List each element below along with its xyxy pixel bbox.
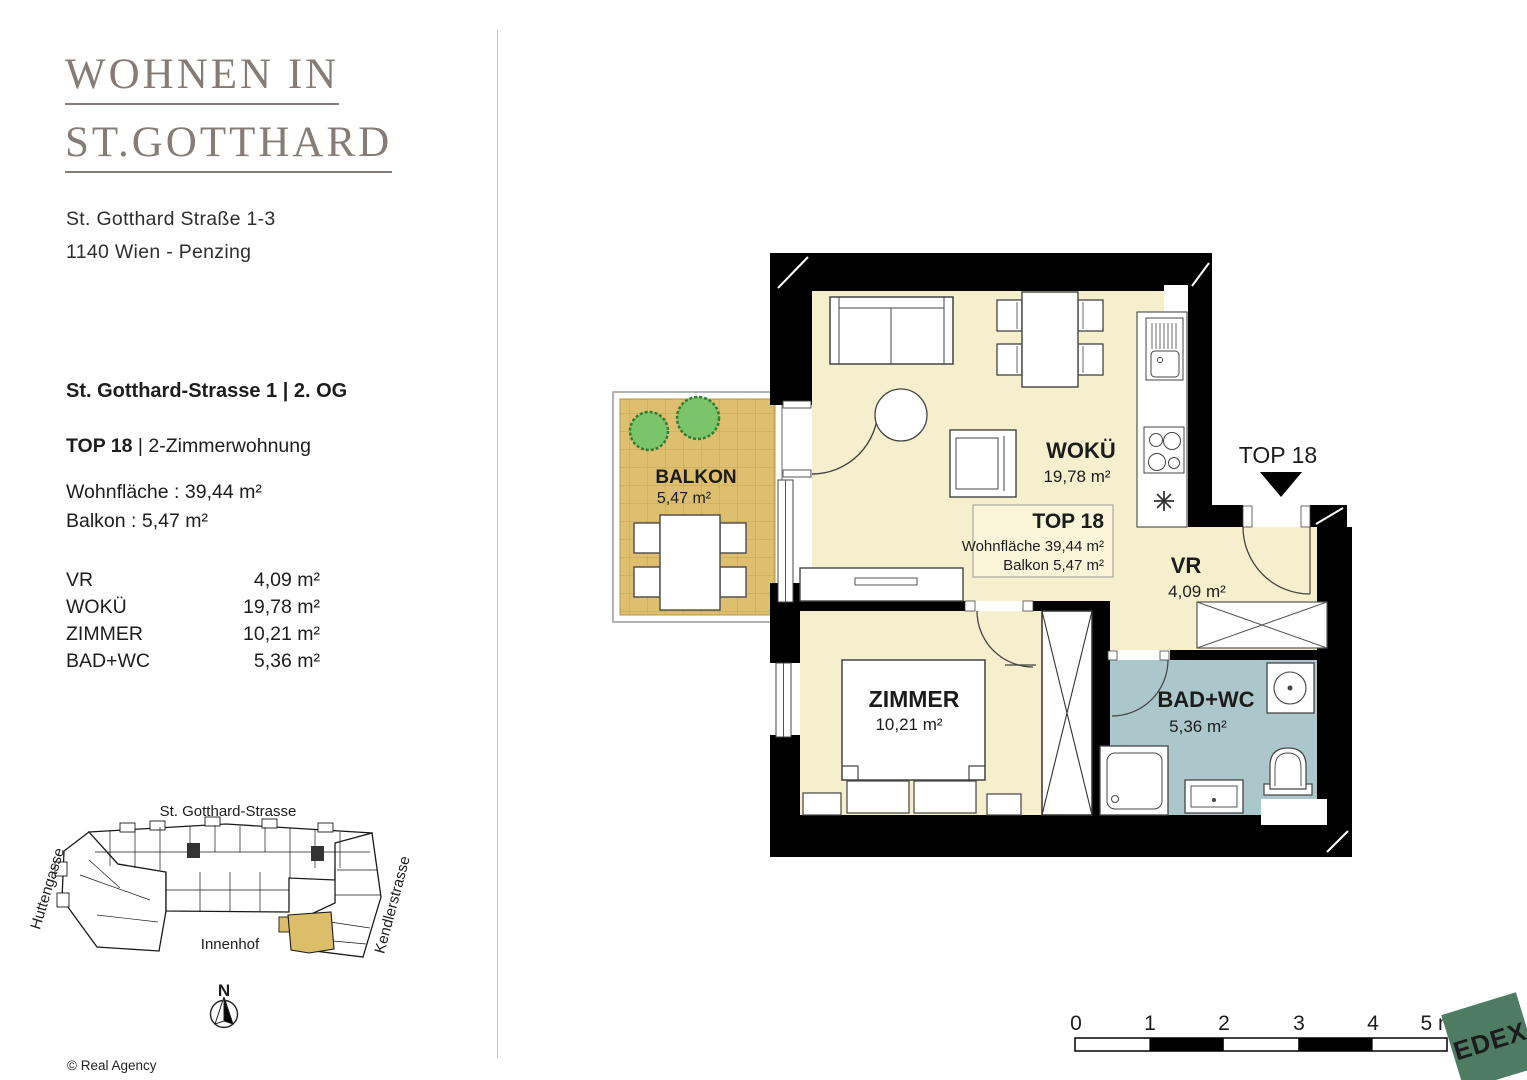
plan-graphics: BALKON 5,47 m² <box>0 0 1527 1080</box>
stove-icon <box>1144 427 1184 473</box>
kitchen-counter <box>1137 312 1187 527</box>
unit-info-box: TOP 18 Wohnfläche 39,44 m² Balkon 5,47 m… <box>962 505 1113 577</box>
balcony-label: BALKON <box>655 467 736 488</box>
woku-area-label: 19,78 m² <box>1043 467 1110 486</box>
wardrobe <box>1197 602 1327 648</box>
shower-icon <box>1100 746 1168 815</box>
site-plan: St. Gotthard-Strasse Huttengasse Kendler… <box>27 803 414 957</box>
bad-area-label: 5,36 m² <box>1169 717 1227 736</box>
nightstand <box>803 793 841 815</box>
balcony: BALKON 5,47 m² <box>613 392 782 622</box>
scale-bar: 0 1 2 3 4 5 m <box>1070 1012 1455 1051</box>
site-stairwell <box>311 846 324 861</box>
scale-tick-label: 2 <box>1218 1012 1230 1035</box>
site-highlighted-unit <box>279 912 334 953</box>
bad-label: BAD+WC <box>1157 687 1254 712</box>
armchair <box>950 430 1016 497</box>
zimmer-area-label: 10,21 m² <box>875 715 942 734</box>
scale-tick-label: 0 <box>1070 1012 1082 1035</box>
scale-tick-label: 4 <box>1367 1012 1379 1035</box>
zimmer-window <box>776 663 791 737</box>
washing-machine-icon <box>1267 663 1314 713</box>
balcony-area-label: 5,47 m² <box>657 490 712 507</box>
info-box-line1: Wohnfläche 39,44 m² <box>962 538 1104 555</box>
courtyard-label: Innenhof <box>201 936 260 953</box>
sofa <box>830 297 953 364</box>
scale-tick-label: 3 <box>1293 1012 1305 1035</box>
bed <box>842 660 985 813</box>
edex-logo: EDEX <box>1441 992 1527 1080</box>
north-compass-icon: N <box>211 981 238 1028</box>
wall-notch <box>1164 285 1188 311</box>
sideboard <box>800 568 963 601</box>
zimmer-label: ZIMMER <box>869 686 960 712</box>
site-stairwell <box>187 843 200 858</box>
woku-window <box>778 480 793 602</box>
bath-sink-icon <box>1185 780 1243 813</box>
vr-area-label: 4,09 m² <box>1168 582 1226 601</box>
brochure-page: WOHNEN IN ST.GOTTHARD St. Gotthard Straß… <box>0 0 1527 1080</box>
info-box-line2: Balkon 5,47 m² <box>1003 557 1104 574</box>
entrance-marker: TOP 18 <box>1239 442 1317 497</box>
kitchen-sink-icon <box>1146 318 1183 380</box>
entrance-label: TOP 18 <box>1239 442 1317 468</box>
entrance-arrow-icon <box>1260 472 1302 497</box>
panel-divider <box>497 30 498 1058</box>
vr-label: VR <box>1171 553 1202 578</box>
scale-tick-label: 1 <box>1144 1012 1156 1035</box>
nightstand <box>987 794 1021 815</box>
freezer-star-icon <box>1154 491 1174 511</box>
bath-niche <box>1261 799 1327 825</box>
woku-label: WOKÜ <box>1046 438 1116 463</box>
side-table <box>875 389 927 441</box>
shaft <box>1042 611 1092 815</box>
info-box-title: TOP 18 <box>1032 510 1104 533</box>
street-label-top: St. Gotthard-Strasse <box>160 803 297 820</box>
